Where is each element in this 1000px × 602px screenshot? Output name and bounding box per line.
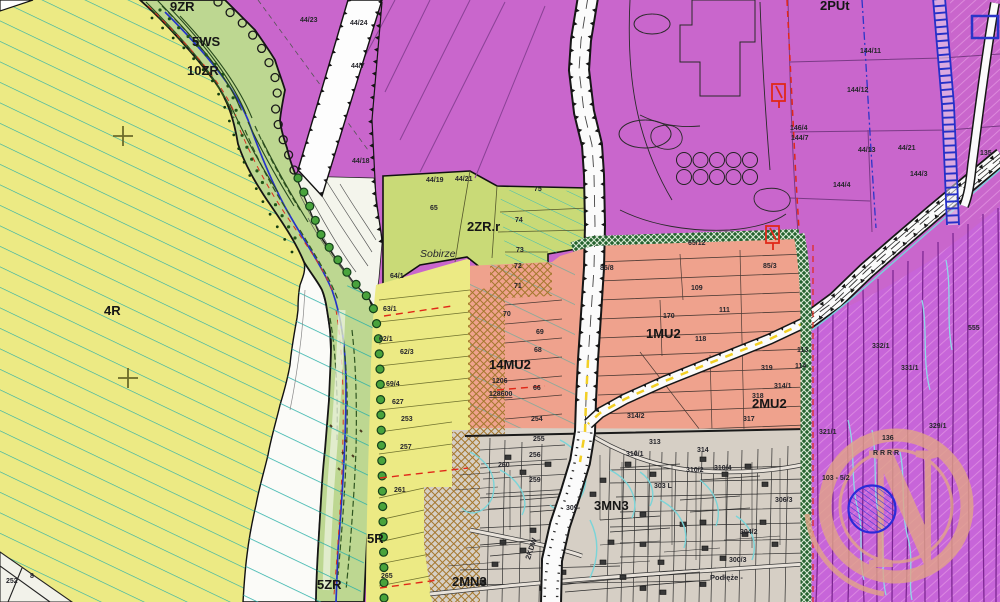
svg-text:259: 259 bbox=[529, 477, 541, 484]
svg-text:75: 75 bbox=[534, 186, 542, 193]
svg-text:14MU2: 14MU2 bbox=[489, 357, 531, 372]
svg-text:329/1: 329/1 bbox=[929, 423, 947, 430]
svg-text:103 - 5/2: 103 - 5/2 bbox=[822, 475, 850, 482]
svg-text:9ZR: 9ZR bbox=[170, 0, 195, 14]
svg-text:300/3: 300/3 bbox=[729, 557, 747, 564]
svg-text:8: 8 bbox=[30, 573, 34, 580]
svg-text:111: 111 bbox=[719, 307, 730, 314]
svg-text:74: 74 bbox=[515, 217, 523, 224]
svg-text:44/19: 44/19 bbox=[426, 177, 444, 184]
svg-text:3MN3: 3MN3 bbox=[594, 498, 629, 513]
svg-text:135: 135 bbox=[980, 150, 992, 157]
svg-text:313: 313 bbox=[649, 439, 661, 446]
svg-text:65/12: 65/12 bbox=[688, 240, 706, 247]
svg-text:109: 109 bbox=[691, 285, 703, 292]
svg-text:71: 71 bbox=[514, 283, 522, 290]
svg-text:310/2: 310/2 bbox=[686, 467, 704, 474]
svg-text:44/23: 44/23 bbox=[300, 17, 318, 24]
svg-text:314: 314 bbox=[697, 447, 709, 454]
svg-text:144/11: 144/11 bbox=[860, 48, 881, 55]
svg-text:555: 555 bbox=[968, 325, 980, 332]
svg-text:62/1: 62/1 bbox=[379, 336, 393, 343]
svg-text:44/21: 44/21 bbox=[898, 145, 916, 152]
svg-text:113: 113 bbox=[797, 347, 808, 354]
svg-text:303 L: 303 L bbox=[654, 483, 673, 490]
svg-text:317: 317 bbox=[743, 416, 755, 423]
svg-text:44/18: 44/18 bbox=[352, 158, 370, 165]
svg-text:310/4: 310/4 bbox=[714, 465, 732, 472]
svg-text:310/1: 310/1 bbox=[626, 451, 644, 458]
svg-text:2ZR.r: 2ZR.r bbox=[467, 219, 500, 234]
svg-text:260: 260 bbox=[498, 462, 510, 469]
svg-text:4R: 4R bbox=[104, 303, 121, 318]
svg-text:309: 309 bbox=[566, 505, 578, 512]
svg-text:44/7: 44/7 bbox=[351, 63, 365, 70]
svg-text:254: 254 bbox=[531, 416, 543, 423]
svg-text:257: 257 bbox=[400, 444, 412, 451]
svg-text:128600: 128600 bbox=[489, 391, 512, 398]
svg-text:331/1: 331/1 bbox=[901, 365, 919, 372]
svg-text:314/1: 314/1 bbox=[774, 383, 792, 390]
svg-text:170: 170 bbox=[663, 313, 675, 320]
svg-text:62/3: 62/3 bbox=[400, 349, 414, 356]
svg-text:318: 318 bbox=[752, 393, 764, 400]
svg-text:72: 72 bbox=[514, 263, 522, 270]
svg-text:136: 136 bbox=[882, 435, 894, 442]
svg-text:144/4: 144/4 bbox=[833, 182, 851, 189]
svg-text:256: 256 bbox=[529, 452, 541, 459]
svg-text:306/3: 306/3 bbox=[775, 497, 793, 504]
svg-text:304/2: 304/2 bbox=[740, 529, 758, 536]
svg-text:332/1: 332/1 bbox=[872, 343, 890, 350]
svg-text:69: 69 bbox=[536, 329, 544, 336]
svg-text:114: 114 bbox=[795, 363, 806, 370]
svg-text:314/2: 314/2 bbox=[627, 413, 645, 420]
svg-text:Sobirze: Sobirze bbox=[420, 248, 456, 260]
svg-text:64/1: 64/1 bbox=[390, 273, 404, 280]
svg-text:2MN3: 2MN3 bbox=[452, 574, 487, 589]
svg-text:261: 261 bbox=[394, 487, 406, 494]
svg-text:10ZR: 10ZR bbox=[187, 63, 219, 78]
svg-text:R R R R: R R R R bbox=[873, 450, 899, 457]
svg-text:5R: 5R bbox=[367, 531, 384, 546]
svg-text:144/7: 144/7 bbox=[791, 135, 809, 142]
svg-text:85/8: 85/8 bbox=[600, 265, 614, 272]
svg-text:1MU2: 1MU2 bbox=[646, 326, 681, 341]
svg-text:321/1: 321/1 bbox=[819, 429, 837, 436]
svg-text:73: 73 bbox=[516, 247, 524, 254]
svg-text:627: 627 bbox=[392, 399, 404, 406]
svg-text:265: 265 bbox=[381, 573, 393, 580]
svg-text:65: 65 bbox=[430, 205, 438, 212]
svg-text:44/21: 44/21 bbox=[455, 176, 473, 183]
svg-text:5ZR: 5ZR bbox=[317, 577, 342, 592]
svg-text:69/4: 69/4 bbox=[386, 381, 400, 388]
svg-text:70: 70 bbox=[503, 311, 511, 318]
svg-text:252: 252 bbox=[6, 578, 18, 585]
svg-text:319: 319 bbox=[761, 365, 773, 372]
svg-text:1206: 1206 bbox=[492, 378, 508, 385]
svg-text:118: 118 bbox=[695, 336, 706, 343]
svg-text:2PUt: 2PUt bbox=[820, 0, 850, 13]
svg-text:146/4: 146/4 bbox=[790, 125, 808, 132]
svg-text:253: 253 bbox=[401, 416, 413, 423]
svg-text:44/13: 44/13 bbox=[858, 147, 876, 154]
svg-text:63/1: 63/1 bbox=[383, 306, 397, 313]
svg-text:68: 68 bbox=[534, 347, 542, 354]
svg-text:66: 66 bbox=[533, 385, 541, 392]
svg-text:144/3: 144/3 bbox=[910, 171, 928, 178]
svg-text:255: 255 bbox=[533, 436, 545, 443]
svg-text:Podłęże -: Podłęże - bbox=[710, 573, 743, 582]
svg-text:85/3: 85/3 bbox=[763, 263, 777, 270]
svg-text:5WS: 5WS bbox=[192, 34, 221, 49]
svg-text:44/24: 44/24 bbox=[350, 20, 368, 27]
svg-text:144/12: 144/12 bbox=[847, 87, 869, 94]
